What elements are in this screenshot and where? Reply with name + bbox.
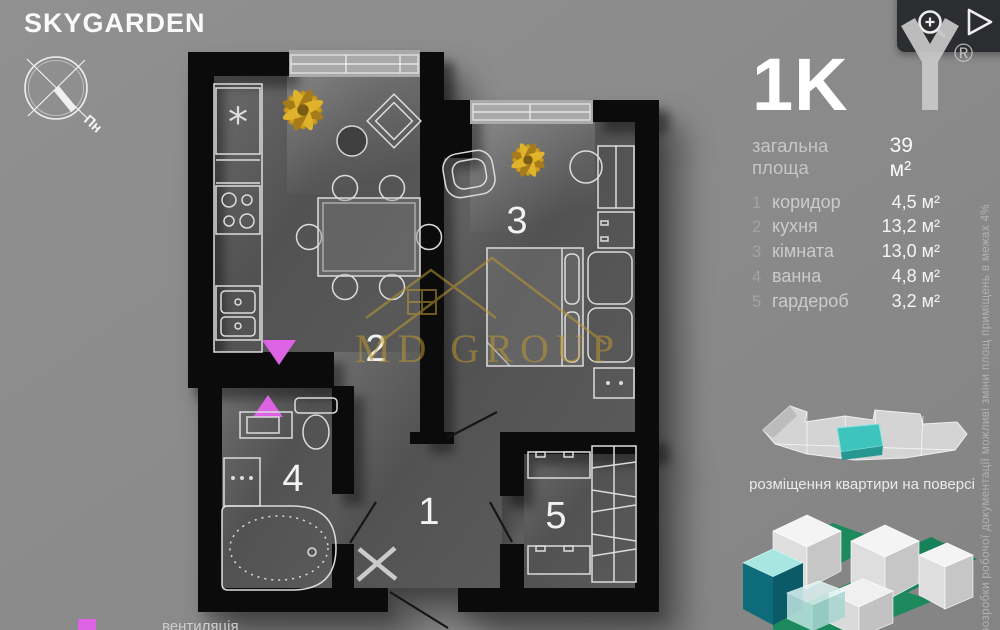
room-label-bathroom: 4	[282, 458, 303, 500]
vent-legend-swatch	[78, 619, 96, 630]
watermark-text: MD GROUP	[355, 326, 621, 371]
area-change-disclaimer: розробки робочої документації можливі зм…	[980, 204, 992, 630]
room-area-row: 4 ванна 4,8 м²	[752, 266, 940, 291]
bedroom-window	[470, 100, 593, 124]
room-area-row: 3 кімната 13,0 м²	[752, 241, 940, 266]
room-area-row: 2 кухня 13,2 м²	[752, 216, 940, 241]
total-area-value: 39 м²	[890, 134, 940, 182]
round-side-table	[337, 126, 367, 156]
apartment-type-title: 1K	[752, 46, 940, 124]
compass-icon: Пн	[25, 57, 105, 136]
building-3d-diagram	[733, 497, 989, 630]
room-label-bedroom: 3	[506, 200, 527, 242]
skygarden-logo: SKYGARDEN	[24, 8, 206, 39]
room-area-row: 5 гардероб 3,2 м²	[752, 291, 940, 316]
registered-trademark-icon: ®	[954, 38, 973, 69]
floor-position-diagram	[745, 392, 985, 476]
room-label-wardrobe: 5	[545, 495, 566, 537]
apartment-info-panel: 1K загальна площа 39 м² 1 коридор 4,5 м²…	[752, 46, 940, 316]
vent-legend-label: вентиляція	[162, 618, 239, 630]
listing-floorplan-image: Пн	[0, 0, 1000, 630]
kitchen-window	[289, 50, 420, 77]
room-label-corridor: 1	[418, 491, 439, 533]
total-area-row: загальна площа 39 м²	[752, 134, 940, 182]
room-area-list: 1 коридор 4,5 м² 2 кухня 13,2 м² 3 кімна…	[752, 192, 940, 316]
fridge-asterisk-icon: *	[228, 100, 248, 146]
floor-position-caption: розміщення квартири на поверсі	[742, 476, 982, 493]
room-area-row: 1 коридор 4,5 м²	[752, 192, 940, 217]
total-area-label: загальна площа	[752, 135, 890, 179]
